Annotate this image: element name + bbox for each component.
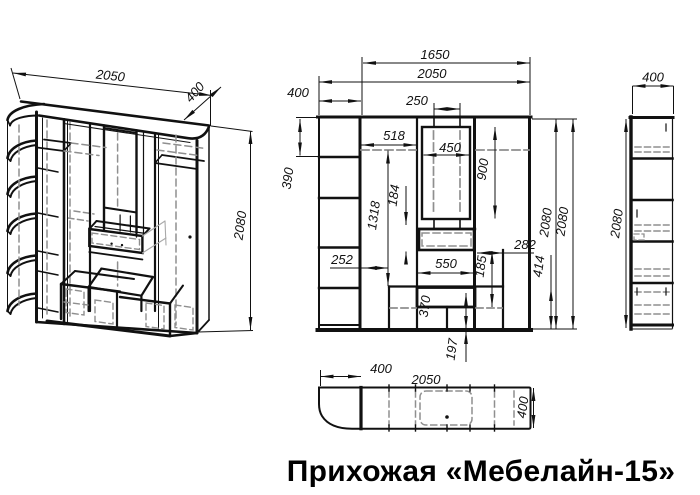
svg-text:370: 370: [416, 294, 434, 318]
svg-text:1650: 1650: [421, 47, 451, 62]
svg-text:184: 184: [385, 184, 403, 208]
svg-text:252: 252: [330, 252, 353, 267]
svg-text:197: 197: [443, 337, 461, 361]
svg-text:2050: 2050: [417, 66, 448, 81]
svg-text:900: 900: [474, 157, 492, 181]
svg-text:550: 550: [435, 256, 457, 271]
svg-text:400: 400: [514, 395, 532, 419]
svg-text:250: 250: [405, 93, 428, 108]
svg-text:185: 185: [472, 254, 490, 278]
svg-text:390: 390: [279, 166, 297, 190]
svg-text:450: 450: [439, 140, 461, 155]
svg-text:2050: 2050: [94, 66, 126, 84]
svg-text:Прихожая «Мебелайн-15»: Прихожая «Мебелайн-15»: [287, 455, 676, 488]
svg-text:518: 518: [383, 128, 405, 143]
svg-text:400: 400: [642, 70, 664, 85]
svg-text:2050: 2050: [411, 372, 442, 387]
svg-text:400: 400: [370, 361, 392, 376]
svg-text:282: 282: [513, 237, 536, 252]
svg-text:414: 414: [530, 255, 548, 279]
svg-text:400: 400: [287, 85, 309, 100]
